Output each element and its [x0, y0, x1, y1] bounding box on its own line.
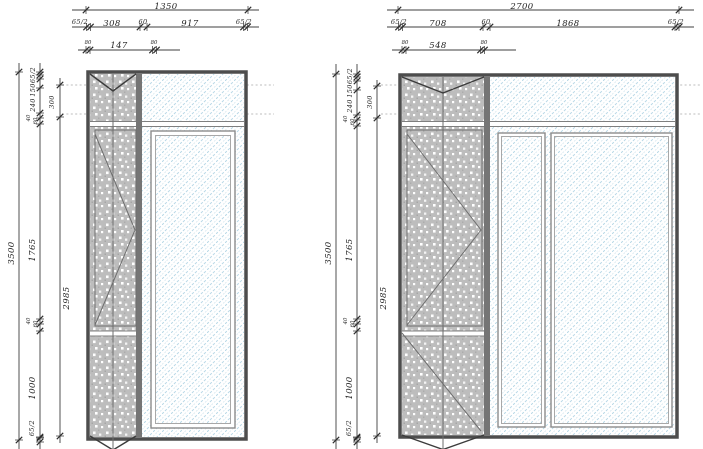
dim-label: 1868 [556, 19, 579, 29]
dim-label: 150 [29, 83, 37, 97]
technical-drawing-page: 1350 65/2 308 60 917 65/2 80 147 80 3500… [0, 0, 703, 449]
dim-label: 308 [103, 19, 120, 29]
dim-label: 65/2 [72, 18, 88, 26]
dim-label: 80 [85, 40, 92, 46]
dim-label: 2985 [379, 286, 389, 309]
dim-label: 1765 [28, 238, 38, 261]
dim-label: 60 [33, 118, 39, 125]
dim-label-height-total: 3500 [324, 241, 334, 264]
dim-label: 65/2 [345, 420, 353, 436]
dim-label: 60 [138, 18, 147, 26]
dim-label: 40 [343, 116, 349, 123]
dim-label: 548 [429, 41, 446, 51]
dim-label: 1000 [345, 376, 355, 399]
dim-label: 2985 [62, 286, 72, 309]
dim-label: 60 [33, 321, 39, 328]
dim-label: 708 [429, 19, 446, 29]
dim-label: 150 [346, 84, 354, 98]
dim-label: 1765 [345, 238, 355, 261]
dim-label: 1000 [28, 376, 38, 399]
left-view-linework [15, 6, 274, 449]
dim-label: 60 [481, 18, 490, 26]
dim-label: 40 [343, 318, 349, 325]
dim-label-height-total: 3500 [7, 241, 17, 264]
dim-label: 60 [350, 119, 356, 126]
dim-label: 40 [26, 318, 32, 325]
dim-label: 300 [366, 95, 374, 109]
dim-label: 65/2 [346, 68, 354, 84]
dim-label: 80 [481, 40, 488, 46]
dim-label-width-total: 2700 [510, 2, 533, 12]
dim-label: 300 [48, 95, 56, 109]
dim-label: 65/2 [236, 18, 252, 26]
right-view-linework [332, 6, 701, 449]
dim-label: 80 [151, 40, 158, 46]
dim-label: 80 [402, 40, 409, 46]
dim-label: 147 [110, 41, 127, 51]
dim-label: 240 [346, 99, 354, 113]
dim-label: 65/2 [391, 18, 407, 26]
dim-label: 240 [29, 98, 37, 112]
dim-label-width-total: 1350 [154, 2, 177, 12]
dim-label: 65/2 [29, 67, 37, 83]
dim-label: 60 [350, 321, 356, 328]
dim-label: 65/2 [668, 18, 684, 26]
dim-label: 917 [181, 19, 198, 29]
dim-label: 40 [26, 115, 32, 122]
dim-label: 65/2 [28, 420, 36, 436]
